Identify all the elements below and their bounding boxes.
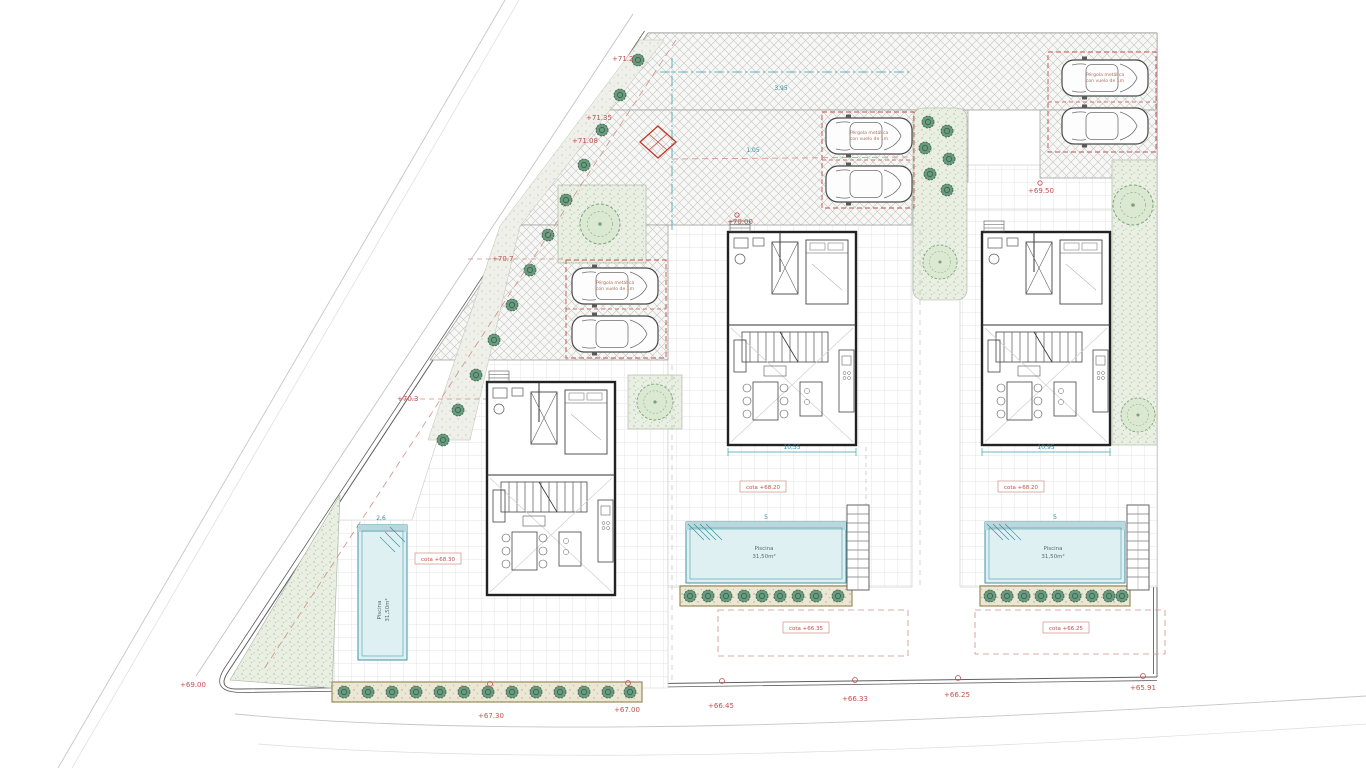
elevation-label: +71.35 [586, 114, 612, 122]
pergola-label: Pérgola metálica [596, 279, 635, 286]
elevation-label: +66.45 [708, 702, 734, 710]
tree-icon [637, 384, 673, 420]
elevation-label: +69.50 [1028, 187, 1054, 195]
pergola-label: con vuelo de 1m [850, 136, 889, 142]
dimension-label: 1,05 [746, 147, 760, 154]
pool-area-label: 31,50m² [384, 598, 391, 621]
dimension-label: 3,95 [774, 85, 788, 92]
house-b-floorplan [728, 221, 856, 445]
pool-name-label: Piscina [377, 601, 383, 620]
tree-icon [1113, 185, 1153, 225]
dimension-label: 5 [1053, 514, 1057, 521]
car-icon [826, 163, 912, 206]
cota-label: cota +66.35 [789, 626, 824, 632]
exterior-stair [1127, 505, 1149, 590]
tree-icon [580, 204, 620, 244]
pool-name-label: Piscina [755, 546, 774, 552]
pool-name-label: Piscina [1044, 546, 1063, 552]
cota-label: cota +68.20 [1004, 485, 1039, 491]
bush-row-pool-c [984, 590, 1128, 602]
elevation-label: +69.00 [180, 681, 206, 689]
elevation-label: +70.00 [727, 218, 753, 226]
dimension-label: 10,55 [783, 444, 800, 451]
pergola-label: Pérgola metálica [850, 129, 889, 136]
dimension-label: 5 [764, 514, 768, 521]
house-c-floorplan [982, 221, 1110, 445]
parking-middle-left: Pérgola metálica con vuelo de 1m [566, 260, 666, 358]
pool-area-label: 31,50m² [752, 553, 775, 560]
elevation-label: +70.3 [397, 395, 418, 403]
bush-row-pool-b [684, 590, 844, 602]
pergola-label: con vuelo de 1m [1086, 78, 1125, 84]
cota-label: cota +68.20 [746, 485, 781, 491]
elevation-label: +67.00 [614, 706, 640, 714]
car-icon [572, 313, 658, 356]
site-plan-page: Pérgola metálica con vuelo de 1m Pérgola… [0, 0, 1366, 768]
pergola-label: Pérgola metálica [1086, 71, 1125, 78]
pergola-label: con vuelo de 1m [596, 286, 635, 292]
house-a-floorplan [487, 371, 615, 595]
tree-icon [1121, 398, 1155, 432]
elevation-label: +71.2 [612, 55, 633, 63]
cota-label: cota +68.30 [421, 557, 456, 563]
site-plan-drawing: Pérgola metálica con vuelo de 1m Pérgola… [0, 0, 1366, 768]
pool-area-label: 31,50m² [1041, 553, 1064, 560]
elevation-label: +66.33 [842, 695, 868, 703]
elevation-label: +66.25 [944, 691, 970, 699]
pool-a: Piscina 31,50m² 2,6 [358, 515, 407, 660]
dimension-label: 10,95 [1037, 444, 1054, 451]
tree-icon [923, 245, 957, 279]
car-icon [1062, 105, 1148, 148]
dimension-label: 2,6 [376, 515, 386, 522]
car-icon [1062, 57, 1148, 100]
car-icon [826, 115, 912, 158]
cota-label: cota +66.25 [1049, 626, 1084, 632]
elevation-label: +71.08 [572, 137, 598, 145]
elevation-label: +70.7 [492, 255, 513, 263]
elevation-label: +65.91 [1130, 684, 1156, 692]
car-icon [572, 265, 658, 308]
elevation-label: +67.30 [478, 712, 504, 720]
exterior-stair [847, 505, 869, 590]
